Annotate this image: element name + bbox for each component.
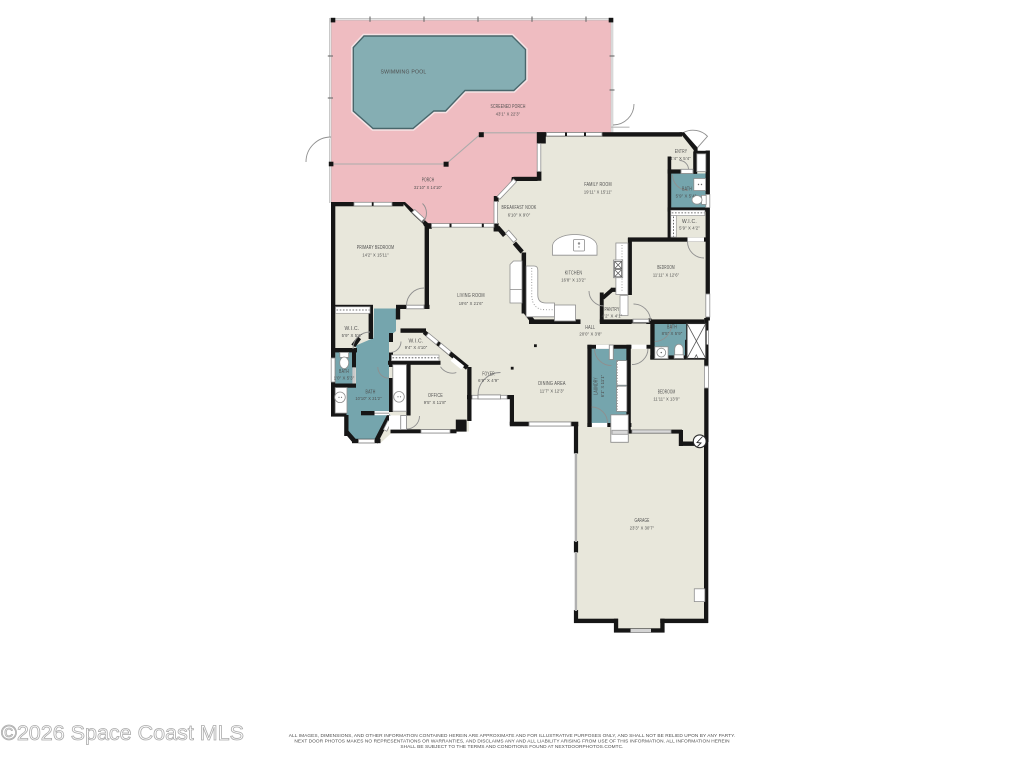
svg-text:SWIMMING POOL: SWIMMING POOL: [381, 70, 427, 76]
svg-text:LIVING ROOM: LIVING ROOM: [457, 293, 485, 299]
svg-text:GARAGE: GARAGE: [635, 518, 650, 524]
svg-text:BREAKFAST NOOK: BREAKFAST NOOK: [502, 205, 537, 211]
svg-text:BEDROOM: BEDROOM: [658, 390, 676, 396]
svg-text:KITCHEN: KITCHEN: [565, 271, 583, 277]
svg-text:20'0" X 3'8": 20'0" X 3'8": [579, 331, 602, 336]
svg-text:4'4" X 5'4": 4'4" X 5'4": [670, 156, 691, 161]
svg-text:DINING AREA: DINING AREA: [538, 381, 566, 387]
svg-text:11'11" X 12'6": 11'11" X 12'6": [653, 273, 680, 278]
svg-text:8'5" X 5'9": 8'5" X 5'9": [662, 331, 683, 336]
svg-text:W.I.C.: W.I.C.: [682, 219, 697, 225]
svg-text:31'10" X 14'10": 31'10" X 14'10": [414, 185, 442, 190]
svg-text:9'5" X 11'8": 9'5" X 11'8": [424, 400, 447, 405]
svg-text:14'2" X 15'11": 14'2" X 15'11": [362, 253, 389, 258]
svg-text:5'9" X 5'4": 5'9" X 5'4": [676, 194, 697, 199]
svg-text:BATH: BATH: [667, 325, 677, 331]
svg-text:W.I.C.: W.I.C.: [409, 339, 424, 345]
svg-text:PRIMARY BEDROOM: PRIMARY BEDROOM: [357, 245, 395, 251]
svg-text:NEXT DOOR PHOTOS MAKES NO REPR: NEXT DOOR PHOTOS MAKES NO REPRESENTATION…: [294, 739, 730, 745]
svg-text:BATH: BATH: [366, 390, 376, 396]
svg-text:16'8" X 13'2": 16'8" X 13'2": [561, 278, 586, 283]
svg-text:FAMILY ROOM: FAMILY ROOM: [584, 182, 612, 188]
svg-text:6'9" X 4'9": 6'9" X 4'9": [478, 378, 499, 383]
svg-text:HALL: HALL: [585, 325, 595, 331]
svg-text:11'11" X 13'0": 11'11" X 13'0": [653, 397, 680, 402]
svg-text:1'0" X 5'3": 1'0" X 5'3": [334, 376, 355, 381]
svg-text:11'7" X 12'3": 11'7" X 12'3": [540, 389, 565, 394]
svg-text:PORCH: PORCH: [422, 178, 435, 184]
svg-text:4'2" X 4'1": 4'2" X 4'1": [602, 314, 623, 319]
svg-text:OFFICE: OFFICE: [428, 393, 443, 399]
svg-text:5'9" X 4'2": 5'9" X 4'2": [679, 226, 700, 231]
svg-text:10'10" X 21'2": 10'10" X 21'2": [355, 396, 382, 401]
svg-text:PANTRY: PANTRY: [605, 307, 620, 313]
svg-text:43'1" X 22'3": 43'1" X 22'3": [496, 112, 521, 117]
svg-text:19'6" X 21'6": 19'6" X 21'6": [459, 301, 484, 306]
svg-text:BATH: BATH: [339, 369, 349, 375]
svg-text:ALL IMAGES, DIMENSIONS, AND OT: ALL IMAGES, DIMENSIONS, AND OTHER INFORM…: [289, 733, 735, 739]
svg-text:SHALL BE SUBJECT TO THE TERMS: SHALL BE SUBJECT TO THE TERMS AND CONDIT…: [400, 744, 623, 750]
svg-text:BEDROOM: BEDROOM: [657, 265, 675, 271]
svg-text:ENTRY: ENTRY: [675, 149, 688, 155]
svg-text:5'9" X 5'6": 5'9" X 5'6": [342, 333, 363, 338]
svg-text:9'4" X 4'10": 9'4" X 4'10": [405, 345, 428, 350]
svg-text:6'1" X 11'1": 6'1" X 11'1": [600, 374, 605, 397]
svg-text:SCREENED PORCH: SCREENED PORCH: [491, 104, 526, 110]
svg-text:6'10" X 9'0": 6'10" X 9'0": [508, 213, 531, 218]
svg-text:23'3" X 30'7": 23'3" X 30'7": [630, 526, 655, 531]
svg-text:W.I.C.: W.I.C.: [345, 326, 360, 332]
svg-text:FOYER: FOYER: [482, 372, 495, 378]
svg-text:LAUNDRY: LAUNDRY: [594, 377, 600, 395]
svg-text:19'11" X 15'11": 19'11" X 15'11": [584, 190, 612, 195]
svg-text:©2026 Space Coast MLS: ©2026 Space Coast MLS: [1, 721, 244, 745]
svg-text:BATH: BATH: [682, 187, 692, 193]
